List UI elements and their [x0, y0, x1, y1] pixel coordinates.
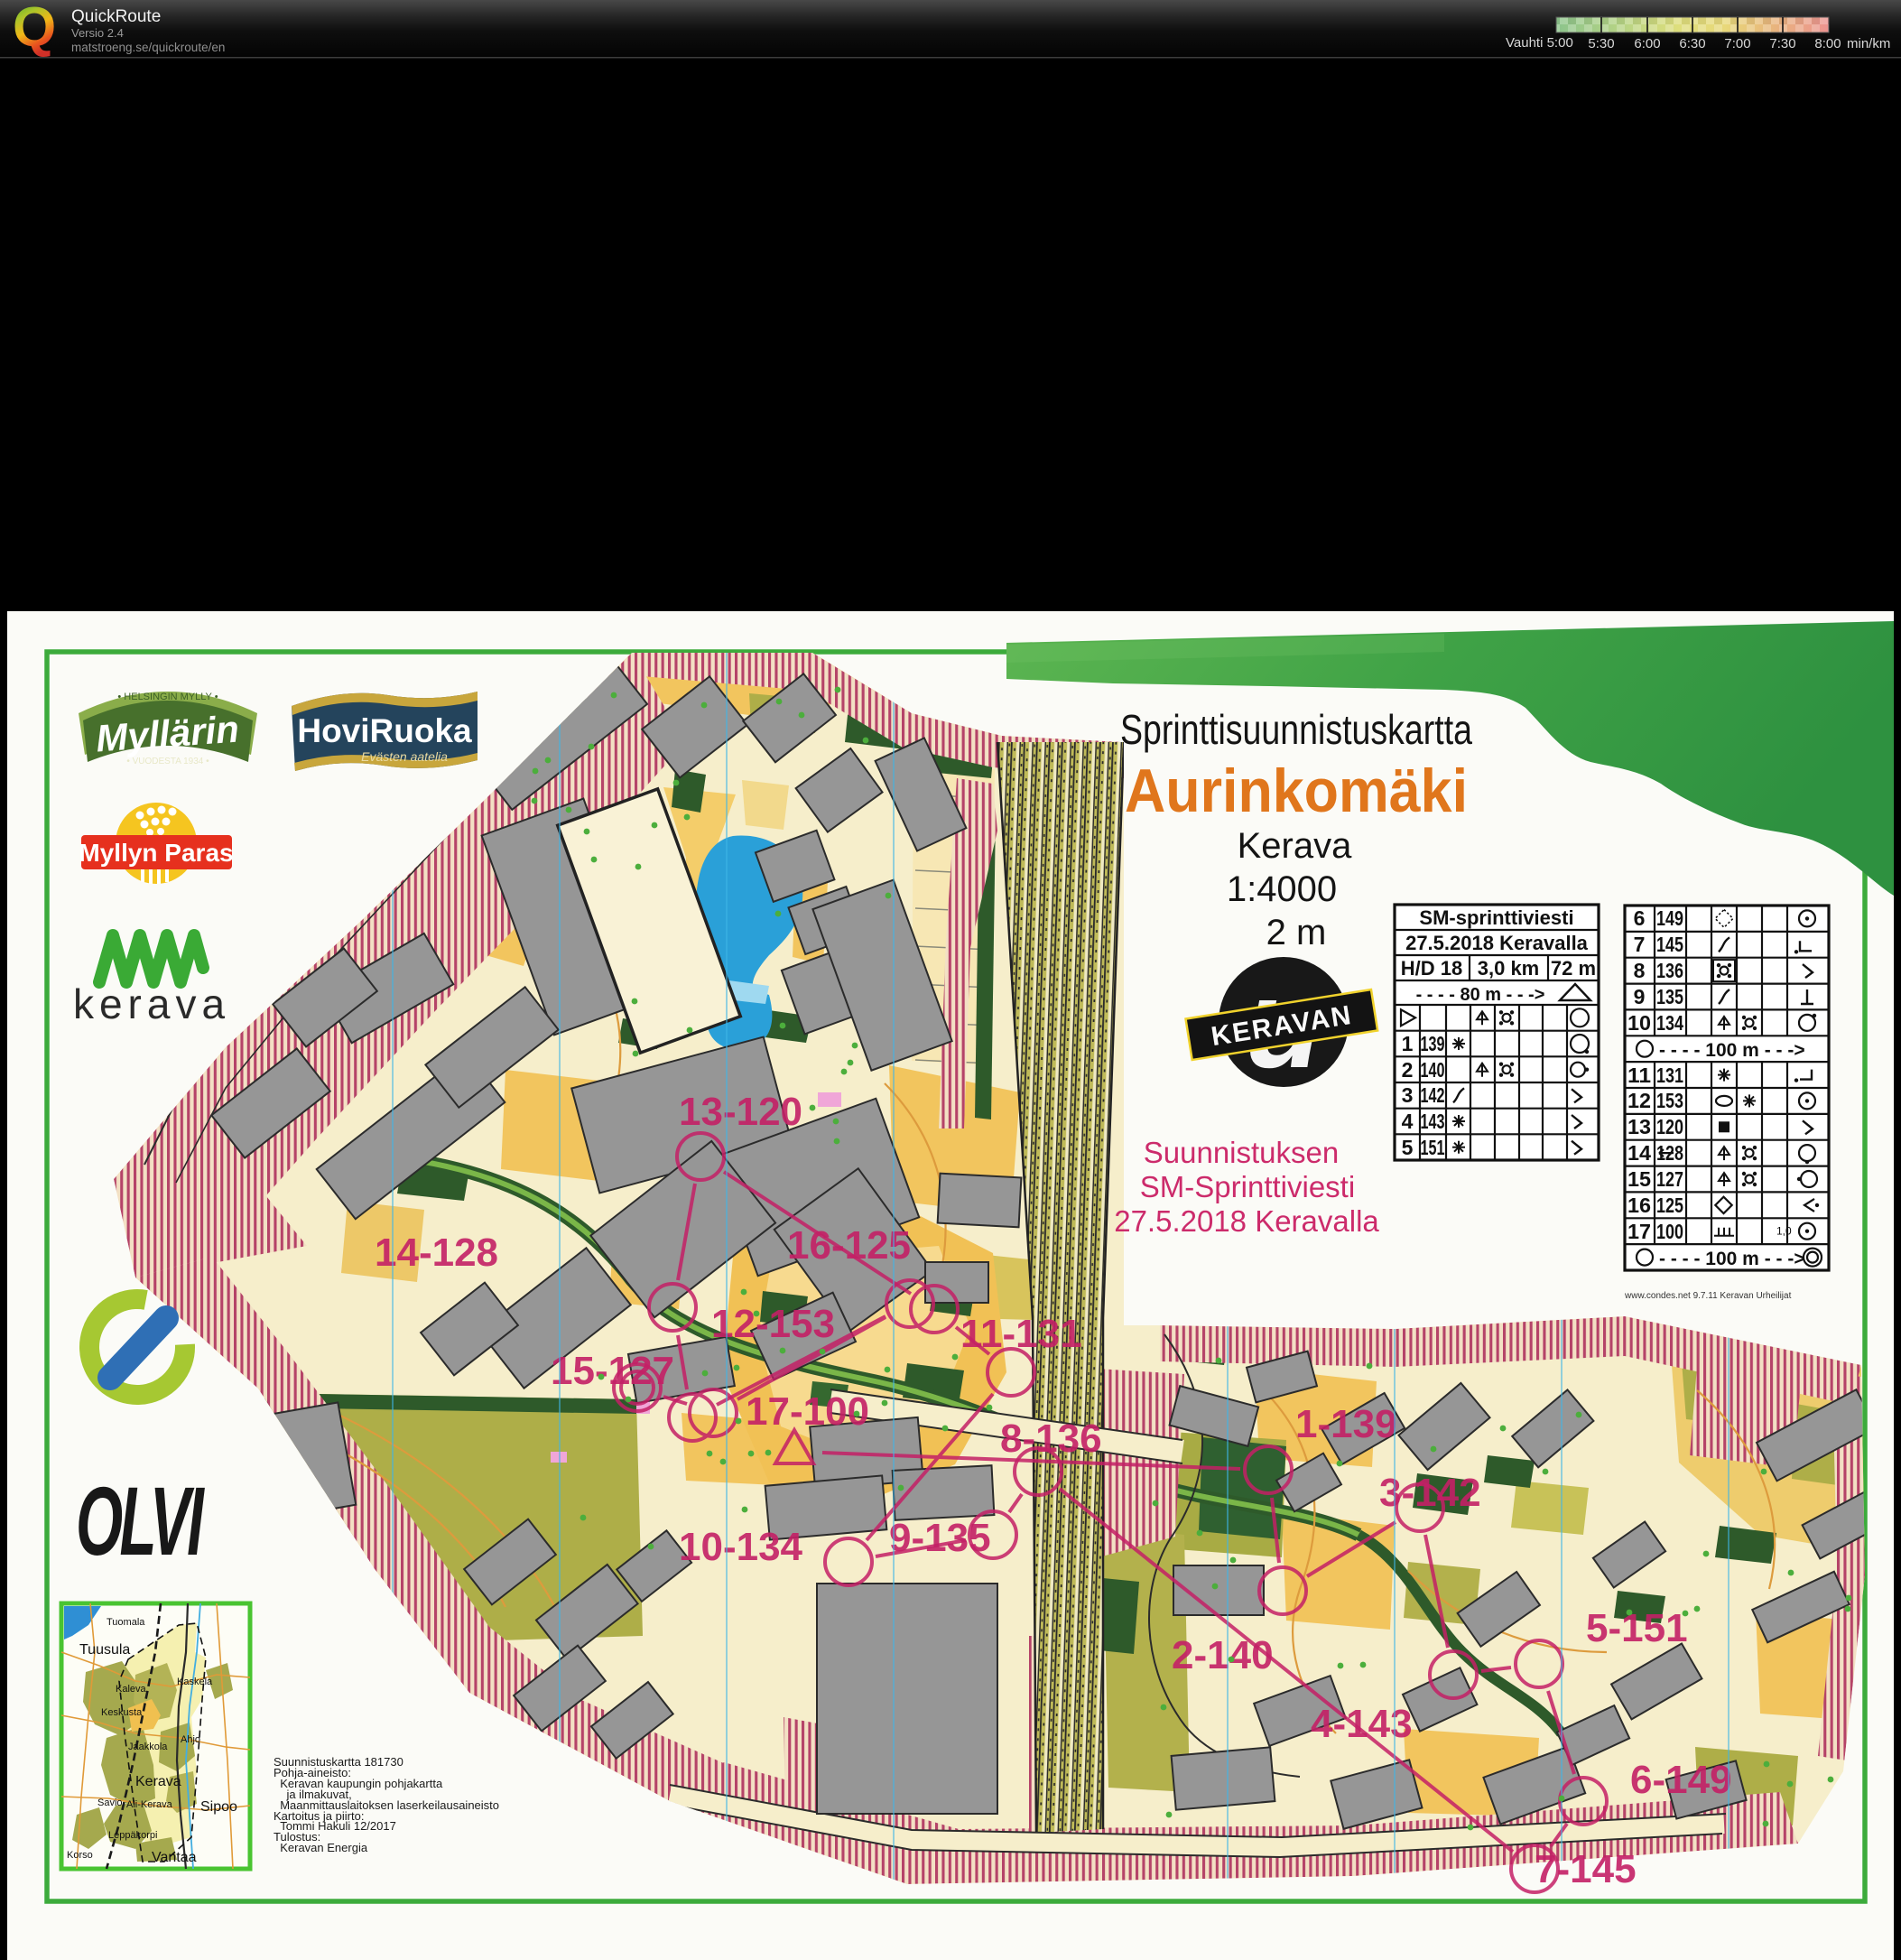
svg-text:Vantaa: Vantaa	[152, 1850, 197, 1865]
svg-text:Kaskela: Kaskela	[177, 1677, 213, 1687]
svg-text:100: 100	[1656, 1220, 1683, 1243]
svg-text:Savio: Savio	[97, 1797, 123, 1808]
svg-text:10-134: 10-134	[679, 1525, 803, 1569]
svg-text:9-135: 9-135	[889, 1516, 991, 1560]
svg-text:13-120: 13-120	[679, 1090, 802, 1134]
svg-text:27.5.2018 Keravalla: 27.5.2018 Keravalla	[1114, 1204, 1379, 1238]
svg-text:13: 13	[1627, 1115, 1651, 1138]
svg-text:9: 9	[1634, 985, 1646, 1008]
svg-text:139: 139	[1421, 1032, 1445, 1055]
svg-text:Aurinkomäki: Aurinkomäki	[1125, 757, 1468, 825]
svg-text:135: 135	[1656, 985, 1683, 1008]
svg-text:2: 2	[1402, 1058, 1414, 1082]
svg-text:Myllyn Paras: Myllyn Paras	[79, 839, 233, 867]
svg-text:11-131: 11-131	[960, 1312, 1082, 1356]
svg-text:• HELSINGIN MYLLY •: • HELSINGIN MYLLY •	[117, 692, 218, 702]
svg-text:Kerava: Kerava	[135, 1774, 181, 1789]
svg-text:1: 1	[1402, 1032, 1414, 1055]
svg-text:7:00: 7:00	[1724, 36, 1750, 51]
svg-text:12: 12	[1627, 1089, 1651, 1112]
svg-text:Jaakkola: Jaakkola	[128, 1742, 168, 1752]
svg-text:SM-sprinttiviesti: SM-sprinttiviesti	[1419, 906, 1573, 929]
svg-text:1,0: 1,0	[1776, 1225, 1792, 1238]
svg-text:8-136: 8-136	[1000, 1417, 1102, 1461]
svg-text:6:30: 6:30	[1679, 36, 1705, 51]
svg-text:15: 15	[1627, 1167, 1651, 1191]
svg-text:72 m: 72 m	[1551, 957, 1596, 980]
svg-text:5:30: 5:30	[1588, 36, 1614, 51]
svg-text:12-153: 12-153	[711, 1302, 835, 1346]
svg-text:Evästen aatelia: Evästen aatelia	[361, 749, 448, 764]
svg-text:15-127: 15-127	[551, 1349, 674, 1393]
svg-text:140: 140	[1421, 1058, 1445, 1082]
svg-text:Tuusula: Tuusula	[79, 1642, 130, 1658]
svg-text:8:00: 8:00	[1814, 36, 1841, 51]
svg-text:3,0 km: 3,0 km	[1478, 957, 1540, 980]
svg-text:151: 151	[1421, 1136, 1445, 1159]
svg-text:Keravan Energia: Keravan Energia	[274, 1841, 368, 1854]
svg-text:6: 6	[1634, 906, 1646, 930]
svg-text:- - - - 100 m - - ->: - - - - 100 m - - ->	[1659, 1040, 1805, 1061]
svg-text:Korso: Korso	[67, 1850, 93, 1861]
svg-text:Sprinttisuunnistuskartta: Sprinttisuunnistuskartta	[1120, 706, 1472, 753]
svg-text:Ahjo: Ahjo	[181, 1734, 200, 1745]
svg-text:17-100: 17-100	[746, 1389, 869, 1434]
svg-text:Keskusta: Keskusta	[101, 1707, 143, 1718]
svg-text:QuickRoute: QuickRoute	[71, 7, 161, 26]
svg-text:16: 16	[1627, 1194, 1651, 1217]
svg-text:145: 145	[1656, 933, 1683, 956]
svg-text:3: 3	[1402, 1083, 1414, 1107]
svg-text:27.5.2018 Keravalla: 27.5.2018 Keravalla	[1405, 932, 1589, 954]
svg-text:7-145: 7-145	[1535, 1847, 1637, 1891]
svg-text:131: 131	[1656, 1064, 1683, 1087]
svg-text:7:30: 7:30	[1769, 36, 1795, 51]
svg-text:min/km: min/km	[1847, 36, 1890, 51]
svg-text:Ali-Kerava: Ali-Kerava	[126, 1799, 173, 1810]
svg-text:Kerava: Kerava	[1238, 826, 1352, 866]
svg-text:2 m: 2 m	[1266, 913, 1327, 952]
svg-text:142: 142	[1421, 1083, 1445, 1107]
svg-text:2-140: 2-140	[1172, 1633, 1274, 1677]
svg-text:Leppäkorpi: Leppäkorpi	[108, 1830, 157, 1841]
svg-text:125: 125	[1656, 1194, 1683, 1217]
svg-text:www.condes.net 9.7.11 Keravan: www.condes.net 9.7.11 Keravan Urheilijat	[1624, 1291, 1792, 1301]
svg-text:16-125: 16-125	[787, 1223, 911, 1268]
svg-text:Sipoo: Sipoo	[200, 1799, 237, 1815]
svg-text:4: 4	[1402, 1110, 1414, 1133]
svg-text:143: 143	[1421, 1110, 1445, 1133]
svg-text:Suunnistuksen: Suunnistuksen	[1144, 1136, 1339, 1169]
svg-text:SM-Sprinttiviesti: SM-Sprinttiviesti	[1140, 1170, 1355, 1203]
svg-text:Tuomala: Tuomala	[107, 1617, 145, 1628]
svg-text:kerava: kerava	[73, 980, 230, 1027]
svg-text:11: 11	[1627, 1064, 1651, 1087]
svg-text:8: 8	[1634, 959, 1646, 982]
svg-text:153: 153	[1656, 1089, 1683, 1112]
svg-text:Versio 2.4: Versio 2.4	[71, 26, 124, 40]
svg-text:5: 5	[1402, 1136, 1414, 1159]
svg-text:134: 134	[1656, 1011, 1683, 1035]
svg-text:Kaleva: Kaleva	[116, 1684, 147, 1695]
svg-text:14: 14	[1627, 1141, 1651, 1165]
svg-text:127: 127	[1656, 1167, 1683, 1191]
svg-text:120: 120	[1656, 1115, 1683, 1138]
svg-text:4-143: 4-143	[1311, 1702, 1413, 1746]
svg-text:6-149: 6-149	[1630, 1758, 1732, 1802]
svg-text:Vauhti 5:00: Vauhti 5:00	[1506, 35, 1573, 51]
svg-text:H/D 18: H/D 18	[1401, 957, 1462, 980]
svg-text:6:00: 6:00	[1634, 36, 1660, 51]
svg-text:7: 7	[1634, 933, 1646, 956]
svg-text:HoviRuoka: HoviRuoka	[297, 712, 472, 749]
svg-text:Q: Q	[13, 0, 56, 59]
svg-text:10: 10	[1627, 1011, 1651, 1035]
svg-text:- - - - 100 m - - ->: - - - - 100 m - - ->	[1659, 1249, 1805, 1269]
svg-text:• VUODESTA 1934 •: • VUODESTA 1934 •	[126, 757, 209, 766]
svg-text:1:4000: 1:4000	[1227, 869, 1337, 909]
svg-text:OLVI: OLVI	[76, 1466, 205, 1575]
svg-text:136: 136	[1656, 959, 1683, 982]
svg-text:149: 149	[1656, 906, 1683, 930]
svg-text:- - - - 80 m - - ->: - - - - 80 m - - ->	[1416, 985, 1545, 1005]
svg-text:5-151: 5-151	[1586, 1606, 1688, 1650]
svg-text:matstroeng.se/quickroute/en: matstroeng.se/quickroute/en	[71, 41, 225, 54]
svg-text:1-139: 1-139	[1295, 1402, 1397, 1446]
svg-text:17: 17	[1627, 1220, 1651, 1243]
